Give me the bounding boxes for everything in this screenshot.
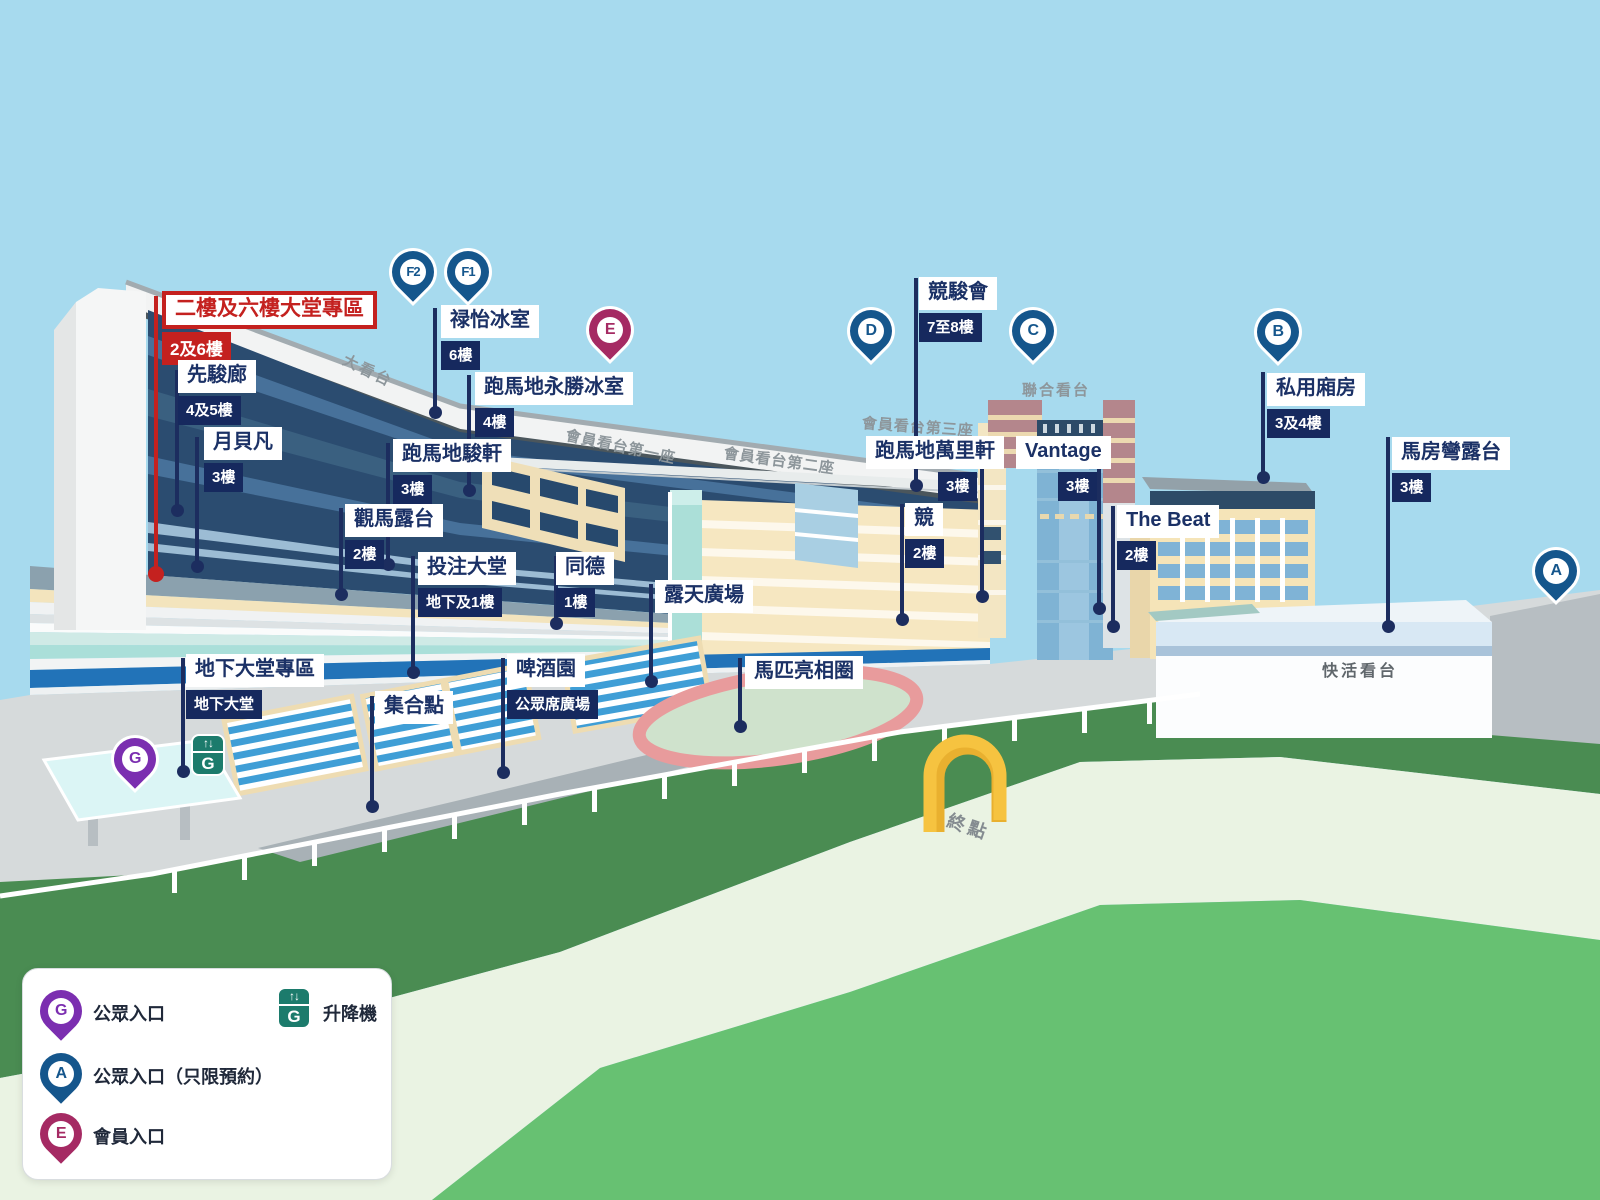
pin-f2[interactable]: F2: [392, 251, 434, 293]
legend-label-public-entrance-reserved: 公眾入口（只限預約）: [93, 1063, 273, 1089]
legend-elevator-icon: ↑↓ G: [277, 987, 311, 1029]
leader-dot: [429, 406, 442, 419]
pin-b[interactable]: B: [1257, 311, 1299, 353]
happy-stand-label: 快活看台: [1322, 657, 1398, 681]
facility-annotation: 地下大堂專區 地下大堂: [186, 654, 324, 719]
legend-label-elevator: 升降機: [323, 1000, 377, 1026]
floor-badge: 2樓: [1117, 541, 1156, 570]
facility-annotation: 跑馬地永勝冰室 4樓: [475, 372, 633, 437]
pin-c[interactable]: C: [1012, 310, 1054, 352]
white-tower: [54, 288, 146, 630]
leader-dot: [976, 590, 989, 603]
legend-label-public-entrance: 公眾入口: [93, 1000, 165, 1026]
floor-badge: 3樓: [204, 463, 243, 492]
floor-badge: 2樓: [905, 539, 944, 568]
facility-label: 馬房彎露台: [1392, 437, 1510, 470]
floor-badge: 7至8樓: [919, 313, 982, 342]
pin-b-letter: B: [1265, 319, 1291, 345]
facility-label: 私用廂房: [1267, 373, 1365, 406]
pin-g-public-entrance[interactable]: G: [114, 738, 156, 780]
floor-badge: 3樓: [1058, 472, 1097, 501]
member-stand-cream-facade: [700, 483, 990, 669]
floor-badge: 4及5樓: [178, 396, 241, 425]
floor-badge: 地下大堂: [186, 690, 262, 719]
facility-label: The Beat: [1117, 505, 1219, 538]
leader-line: [738, 658, 742, 726]
facility-label: 地下大堂專區: [186, 654, 324, 687]
floor-badge: 地下及1樓: [418, 588, 502, 617]
leader-dot: [407, 666, 420, 679]
legend-elevator-arrows: ↑↓: [279, 989, 309, 1006]
facility-label: 同德: [556, 552, 614, 585]
facility-annotation: 跑馬地駿軒 3樓: [393, 439, 511, 504]
legend-label-member-entrance: 會員入口: [93, 1123, 165, 1149]
legend-pin-g: G: [40, 990, 82, 1032]
leader-line: [370, 696, 374, 806]
facility-label: 競駿會: [919, 277, 997, 310]
red-zone-annotation: 二樓及六樓大堂專區 2及6樓: [162, 291, 377, 365]
leader-line: [195, 437, 199, 566]
facility-annotation: 競 2樓: [905, 503, 944, 568]
floor-badge: 1樓: [556, 588, 595, 617]
leader-line: [411, 556, 415, 672]
floor-badge: 6樓: [441, 341, 480, 370]
facility-label: 馬匹亮相圈: [745, 656, 863, 689]
map-legend: G 公眾入口 ↑↓ G 升降機 A 公眾入口（只限預約） E 會員入口: [22, 968, 392, 1180]
happy-valley-racecourse-map: 大看台 會員看台第一座 會員看台第二座 會員看台第三座 聯合看台 快活看台 終點…: [0, 0, 1600, 1200]
pin-f1-letter: F1: [455, 259, 481, 285]
facility-annotation: 露天廣場: [655, 580, 753, 613]
facility-annotation: 禄怡冰室 6樓: [441, 305, 539, 370]
facility-annotation: 馬匹亮相圈: [745, 656, 863, 689]
red-zone-label: 二樓及六樓大堂專區: [162, 291, 377, 329]
floor-badge: 3及4樓: [1267, 409, 1330, 438]
leader-dot: [171, 504, 184, 517]
leader-dot: [148, 566, 164, 582]
elevator-icon[interactable]: ↑↓ G: [191, 734, 225, 776]
facility-annotation: The Beat 2樓: [1117, 505, 1219, 570]
facility-label: 觀馬露台: [345, 504, 443, 537]
legend-pin-a: A: [40, 1053, 82, 1095]
pin-f1[interactable]: F1: [447, 251, 489, 293]
legend-pin-e: E: [40, 1113, 82, 1155]
right-service-area: [1490, 594, 1600, 744]
leader-line: [900, 504, 904, 619]
leader-line: [154, 296, 158, 576]
facility-label: 集合點: [375, 691, 453, 724]
facility-annotation: 馬房彎露台 3樓: [1392, 437, 1510, 502]
floor-badge: 2樓: [345, 540, 384, 569]
facility-annotation: 競駿會 7至8樓: [919, 277, 997, 342]
pin-g-letter: G: [122, 746, 148, 772]
facility-annotation: 私用廂房 3及4樓: [1267, 373, 1365, 438]
leader-line: [1386, 437, 1390, 626]
leader-line: [1261, 372, 1265, 477]
pin-c-letter: C: [1020, 318, 1046, 344]
leader-line: [181, 658, 185, 771]
pin-f2-letter: F2: [400, 259, 426, 285]
facility-annotation: Vantage 3樓: [1016, 436, 1111, 501]
facility-annotation: 跑馬地萬里軒 3樓: [866, 436, 1004, 501]
pin-e-member-entrance[interactable]: E: [589, 309, 631, 351]
facility-label: 競: [905, 503, 943, 536]
facility-label: 跑馬地永勝冰室: [475, 372, 633, 405]
facility-label: 先駿廊: [178, 360, 256, 393]
facility-annotation: 先駿廊 4及5樓: [178, 360, 256, 425]
facility-label: Vantage: [1016, 436, 1111, 469]
leader-dot: [645, 675, 658, 688]
facility-label: 禄怡冰室: [441, 305, 539, 338]
pin-a-letter: A: [1543, 558, 1569, 584]
facility-label: 露天廣場: [655, 580, 753, 613]
facility-annotation: 同德 1樓: [556, 552, 614, 617]
leader-dot: [177, 765, 190, 778]
happy-stand-building: [1148, 600, 1492, 738]
leader-dot: [1107, 620, 1120, 633]
floor-badge: 公眾席廣場: [507, 690, 598, 719]
leader-line: [1111, 506, 1115, 626]
facility-annotation: 月貝凡 3樓: [204, 427, 282, 492]
legend-pin-g-letter: G: [48, 998, 74, 1024]
leader-dot: [335, 588, 348, 601]
leader-dot: [497, 766, 510, 779]
leader-line: [339, 508, 343, 594]
facility-annotation: 啤酒園 公眾席廣場: [507, 654, 598, 719]
floor-badge: 3樓: [938, 472, 977, 501]
leader-line: [649, 584, 653, 681]
elevator-letter: G: [193, 753, 223, 774]
leader-dot: [550, 617, 563, 630]
facility-label: 跑馬地萬里軒: [866, 436, 1004, 469]
legend-pin-e-letter: E: [48, 1121, 74, 1147]
facility-label: 月貝凡: [204, 427, 282, 460]
pin-a[interactable]: A: [1535, 550, 1577, 592]
floor-badge: 3樓: [1392, 473, 1431, 502]
leader-dot: [734, 720, 747, 733]
leader-dot: [191, 560, 204, 573]
facility-label: 投注大堂: [418, 552, 516, 585]
pin-d[interactable]: D: [850, 310, 892, 352]
legend-elevator-letter: G: [279, 1006, 309, 1027]
facility-annotation: 投注大堂 地下及1樓: [418, 552, 516, 617]
floor-badge: 4樓: [475, 408, 514, 437]
leader-dot: [1257, 471, 1270, 484]
leader-line: [433, 308, 437, 412]
floor-badge: 3樓: [393, 475, 432, 504]
leader-dot: [366, 800, 379, 813]
pin-d-letter: D: [858, 318, 884, 344]
leader-dot: [1093, 602, 1106, 615]
elevator-arrows: ↑↓: [193, 736, 223, 753]
facility-annotation: 集合點: [375, 691, 453, 724]
roof-label-union-stand: 聯合看台: [1022, 379, 1090, 400]
pin-e-letter: E: [597, 317, 623, 343]
leader-dot: [1382, 620, 1395, 633]
leader-line: [501, 658, 505, 772]
facility-label: 跑馬地駿軒: [393, 439, 511, 472]
legend-pin-a-letter: A: [48, 1061, 74, 1087]
facility-label: 啤酒園: [507, 654, 585, 687]
leader-dot: [896, 613, 909, 626]
